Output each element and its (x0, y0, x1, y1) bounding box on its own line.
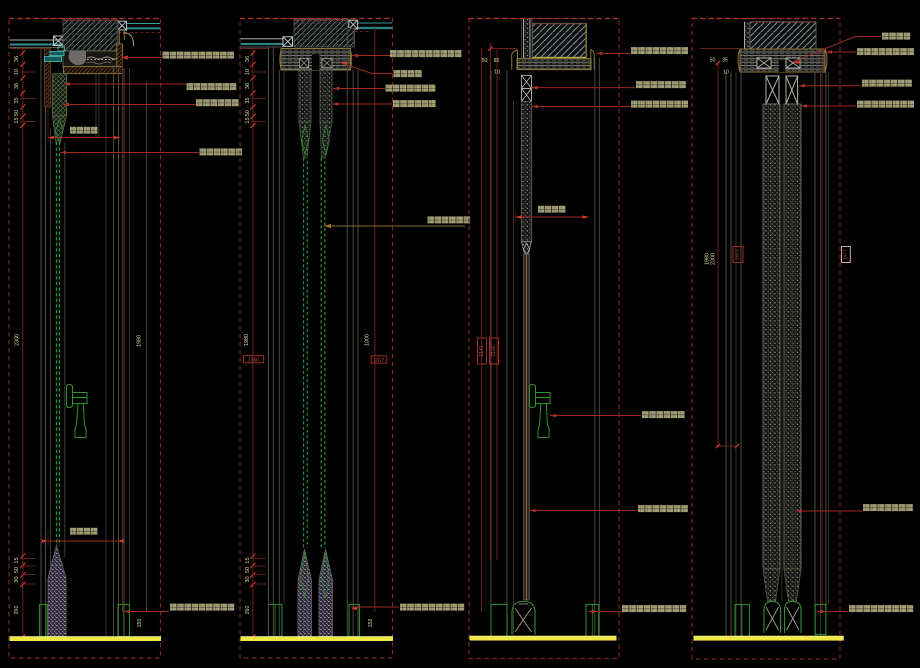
svg-text:1977: 1977 (842, 249, 848, 260)
svg-text:50: 50 (482, 58, 488, 64)
svg-text:35: 35 (245, 97, 251, 103)
svg-text:1980: 1980 (137, 335, 143, 347)
svg-text:10: 10 (245, 69, 251, 75)
svg-text:260: 260 (14, 606, 20, 615)
svg-text:150: 150 (137, 619, 143, 628)
svg-text:36: 36 (245, 56, 251, 62)
svg-text:150: 150 (368, 619, 374, 628)
svg-text:10: 10 (14, 69, 20, 75)
svg-text:85: 85 (494, 58, 500, 64)
svg-text:2141: 2141 (479, 345, 485, 356)
svg-text:36: 36 (14, 56, 20, 62)
svg-text:1077: 1077 (373, 358, 384, 364)
svg-text:1350: 1350 (248, 358, 259, 364)
svg-text:50: 50 (245, 567, 251, 573)
svg-text:50: 50 (14, 110, 20, 116)
svg-text:2102: 2102 (491, 345, 497, 356)
svg-text:50: 50 (14, 567, 20, 573)
svg-text:36: 36 (14, 83, 20, 89)
svg-text:2077: 2077 (735, 249, 741, 260)
svg-text:50: 50 (710, 58, 716, 64)
svg-text:35: 35 (722, 58, 728, 64)
svg-text:2300: 2300 (15, 334, 21, 346)
svg-text:30: 30 (14, 576, 20, 582)
svg-text:36: 36 (245, 83, 251, 89)
svg-text:15: 15 (14, 557, 20, 563)
svg-text:15: 15 (245, 557, 251, 563)
svg-text:2300: 2300 (710, 253, 716, 265)
svg-text:10: 10 (494, 70, 500, 76)
svg-text:10: 10 (723, 70, 729, 76)
svg-text:1980: 1980 (244, 334, 250, 346)
svg-text:50: 50 (245, 110, 251, 116)
svg-text:15: 15 (245, 117, 251, 123)
svg-text:30: 30 (245, 576, 251, 582)
svg-text:260: 260 (245, 606, 251, 615)
svg-text:15: 15 (14, 117, 20, 123)
svg-text:1000: 1000 (365, 334, 371, 346)
svg-text:35: 35 (14, 97, 20, 103)
